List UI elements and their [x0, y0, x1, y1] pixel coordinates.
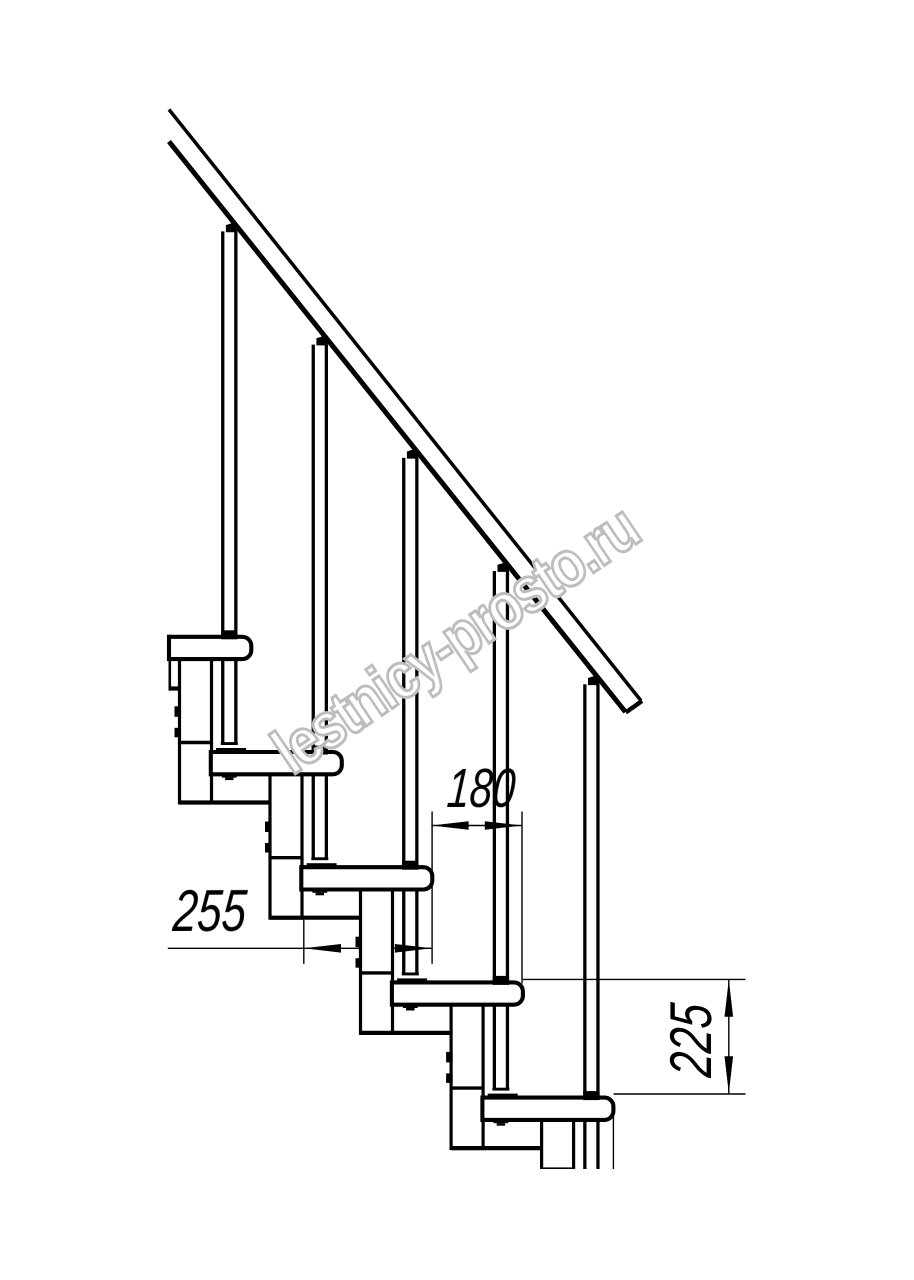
- svg-text:255: 255: [170, 878, 249, 944]
- svg-text:225: 225: [658, 1001, 724, 1080]
